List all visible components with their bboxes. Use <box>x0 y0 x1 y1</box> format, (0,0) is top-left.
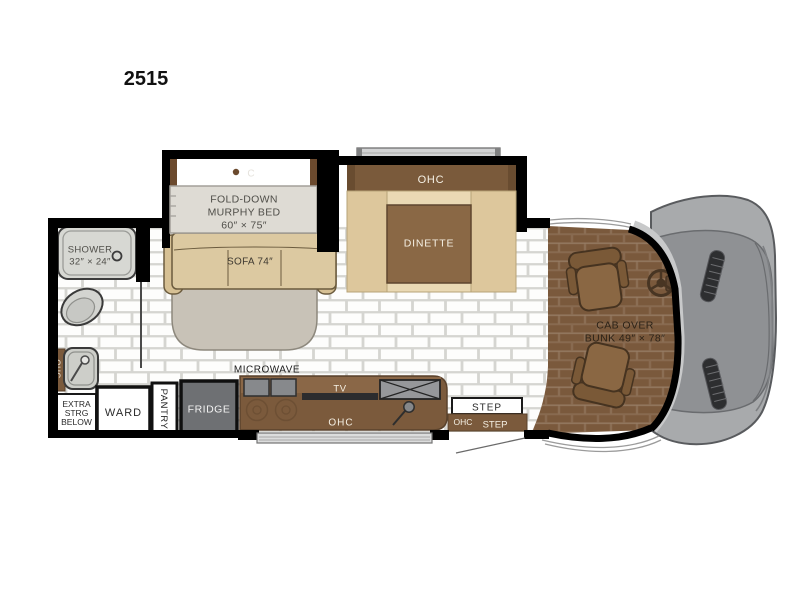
wall-awning-cap-left <box>238 430 259 440</box>
sofa-label: SOFA 74″ <box>227 257 273 268</box>
wall-awning-cap-right <box>430 430 449 440</box>
wall-between-slideouts <box>317 150 339 252</box>
cab-over-bunk-label-line1: CAB OVER <box>596 320 653 332</box>
dinette-bench-right <box>471 191 516 292</box>
entry-step-label: STEP <box>483 419 508 430</box>
reading-light-icon <box>233 169 239 175</box>
model-number-title: 2515 <box>124 68 169 90</box>
wall-top-right-stub <box>526 218 550 228</box>
slideout-head-band <box>170 159 317 186</box>
extra-storage-label-line3: BELOW <box>61 417 92 427</box>
entry-ohc-label: OHC <box>454 417 473 427</box>
rv-floorplan-diagram: 2515 CAB OVER BUNK 49″ × 78″ SOFA 74″ <box>0 0 800 600</box>
pantry-label: PANTRY <box>158 389 169 430</box>
wall-bottom-door-side <box>524 430 549 439</box>
dinette-ohc-edge-left <box>347 165 355 191</box>
fridge-label: FRIDGE <box>188 404 231 416</box>
kitchen-ohc-label: OHC <box>328 418 353 429</box>
slideout-wall-right <box>516 156 527 232</box>
sofa: SOFA 74″ <box>164 233 336 294</box>
microwave-unit <box>271 379 296 396</box>
kitchen-faucet-icon <box>404 402 414 412</box>
step-label: STEP <box>472 403 502 414</box>
dinette-bench-left <box>347 191 387 292</box>
microwave-label: MICROWAVE <box>234 365 300 376</box>
dinette-slideout: OHC DINETTE <box>337 148 527 292</box>
dinette-ohc-label: OHC <box>418 174 445 186</box>
wall-top-left <box>48 218 162 228</box>
bath-sink <box>64 348 98 389</box>
murphy-bed-label-line3: 60″ × 75″ <box>221 220 266 232</box>
floorplan-page: 2515 CAB OVER BUNK 49″ × 78″ SOFA 74″ <box>0 0 800 600</box>
wall-left <box>48 218 58 437</box>
brand-mark: C <box>247 169 254 180</box>
slideout-side-trim-right <box>310 159 317 186</box>
patio-awning-bar <box>257 433 432 443</box>
entry-steps: STEP OHC STEP <box>448 398 527 431</box>
murphy-bed-label-line2: MURPHY BED <box>208 207 281 219</box>
slideout-wall-top <box>162 150 332 159</box>
murphy-bed-slideout: C FOLD-DOWN MURPHY BED 60″ × 75″ <box>162 150 332 248</box>
shower-label-line1: SHOWER <box>68 244 113 255</box>
slideout-wall-top <box>337 156 527 165</box>
dinette-ohc-edge-right <box>508 165 516 191</box>
bath-faucet-icon <box>81 356 89 364</box>
slideout-wall-left <box>162 150 170 248</box>
wall-bottom-left <box>48 430 240 438</box>
microwave-unit <box>244 379 269 396</box>
slideout-side-trim-left <box>170 159 177 186</box>
dinette-label: DINETTE <box>404 238 455 250</box>
murphy-bed-label-line1: FOLD-DOWN <box>210 194 277 206</box>
shower-label-line2: 32″ × 24″ <box>69 256 111 267</box>
tv-screen <box>302 393 378 400</box>
wardrobe-label: WARD <box>105 407 142 419</box>
shower-drain-icon <box>113 252 122 261</box>
tv-label: TV <box>333 383 346 394</box>
